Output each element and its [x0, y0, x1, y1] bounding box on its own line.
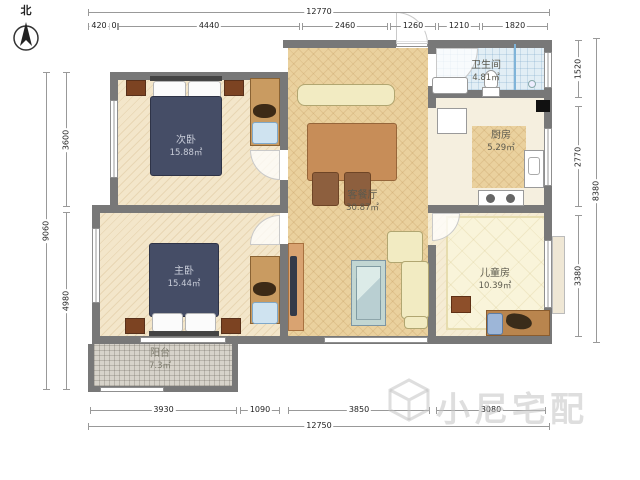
bed: 次卧15.88㎡: [150, 96, 222, 176]
window: [544, 240, 552, 308]
watermark-text: 小尼宅配: [436, 382, 588, 431]
balcony-wall: [88, 344, 94, 392]
lounge-chair: [252, 302, 278, 324]
dim-top-seg: 1260: [390, 26, 436, 27]
stool: [451, 296, 471, 313]
bed-headboard: [149, 331, 219, 336]
burner: [486, 194, 495, 203]
compass-icon: [10, 18, 42, 54]
balcony-wall: [232, 344, 238, 392]
pillow: [152, 313, 183, 332]
burner: [506, 194, 515, 203]
column: [536, 100, 550, 112]
north-label: 北: [8, 2, 44, 18]
tv: [290, 256, 297, 316]
kitchen-sink: [524, 150, 544, 188]
window: [92, 228, 100, 303]
wall: [428, 48, 436, 54]
wall: [280, 244, 288, 340]
nightstand: [221, 318, 241, 334]
toilet-tank: [482, 87, 500, 97]
coffee-table-glass: [356, 266, 381, 320]
dim-right-seg: 3380: [578, 215, 579, 337]
floor-drain: [528, 80, 536, 88]
balcony-door: [140, 337, 226, 343]
kids-chair: [487, 313, 503, 335]
dim-right-total: 8380: [596, 38, 597, 343]
living-window: [324, 337, 428, 343]
dim-top-seg: 0: [110, 26, 118, 27]
dim-top-seg: 4440: [118, 26, 300, 27]
bathroom-label: 卫生间4.81㎡: [455, 60, 517, 83]
window: [544, 128, 552, 186]
dim-top-seg: 420: [88, 26, 110, 27]
watermark-cube-icon: [386, 376, 432, 424]
dim-left-total: 9060: [46, 72, 47, 390]
dim-top-total: 12770: [88, 12, 550, 13]
wall: [92, 205, 288, 213]
window: [544, 52, 552, 88]
floor-plan: 北: [0, 0, 640, 480]
dim-bottom-seg: 1090: [240, 410, 280, 411]
balcony-window: [100, 387, 164, 392]
dim-top-seg: 1820: [482, 26, 548, 27]
pillow: [185, 313, 216, 332]
kitchen-label: 厨房5.29㎡: [472, 130, 530, 153]
wall: [428, 40, 552, 48]
sideboard: [297, 84, 395, 106]
wall: [428, 205, 552, 213]
wall: [280, 72, 288, 150]
bay-window: [552, 236, 565, 314]
bed: 主卧15.44㎡: [149, 243, 219, 317]
living-label: 客餐厅30.87㎡: [320, 190, 405, 213]
dim-right-seg: 1520: [578, 40, 579, 98]
nightstand: [126, 80, 146, 96]
chair: [253, 282, 276, 296]
stove: [478, 190, 524, 206]
dim-bottom-seg: 3930: [90, 410, 237, 411]
balcony-label: 阳台7.3㎡: [130, 348, 190, 371]
kids-label: 儿童房10.39㎡: [458, 268, 532, 291]
window: [110, 100, 118, 178]
dim-left-seg: 4980: [66, 212, 67, 390]
dim-top-seg: 1210: [438, 26, 480, 27]
dim-top-seg: 2460: [302, 26, 388, 27]
dim-right-seg: 2770: [578, 106, 579, 207]
chair: [253, 104, 276, 118]
bedroom1-label: 主卧15.44㎡: [150, 266, 218, 289]
sofa-chaise: [387, 231, 423, 263]
wall: [428, 245, 436, 336]
north-indicator: 北: [8, 2, 44, 54]
watermark: 小尼宅配: [386, 376, 606, 426]
dim-left-seg: 3600: [66, 72, 67, 207]
sink-basin: [528, 157, 540, 175]
wall: [280, 180, 288, 213]
lounge-chair: [252, 122, 278, 144]
sofa-armrest: [404, 316, 428, 329]
nightstand: [125, 318, 145, 334]
nightstand: [224, 80, 244, 96]
wall: [283, 40, 396, 48]
bedroom2-label: 次卧15.88㎡: [151, 135, 221, 158]
fridge: [437, 108, 467, 134]
sofa-body: [401, 261, 429, 319]
coffee-table: [351, 260, 386, 326]
